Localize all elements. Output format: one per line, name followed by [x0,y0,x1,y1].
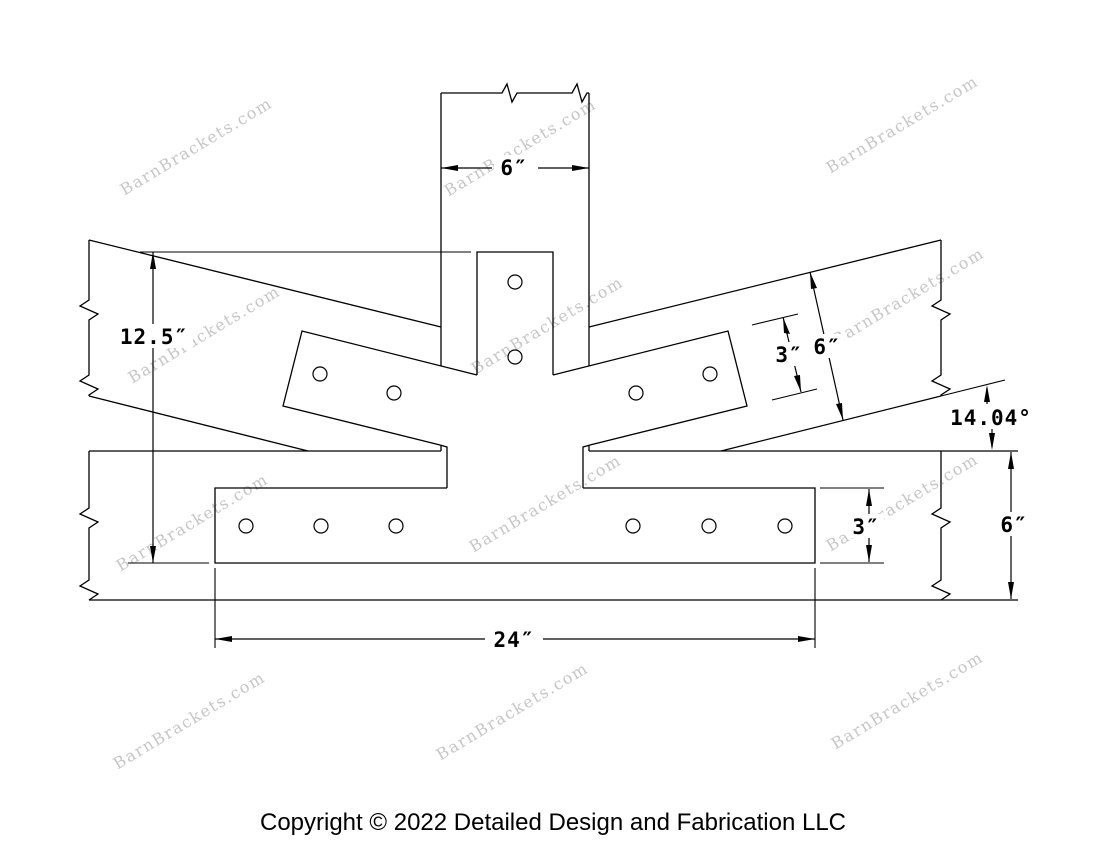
bolt-hole [508,350,522,364]
king-post-top-break-line [441,84,589,102]
bolt-hole [702,519,716,533]
bolt-hole [239,519,253,533]
dimension-label-arm-plate-width: 3″ [775,343,802,367]
arrowhead [150,252,156,269]
bolt-hole [313,367,327,381]
arrowhead [836,403,843,420]
bottom-chord-left-break-line [80,451,98,600]
bolt-hole [389,519,403,533]
arrowhead [572,165,589,171]
fan-bracket-technical-drawing: BarnBrackets.comBarnBrackets.comBarnBrac… [0,0,1100,850]
watermark-text: BarnBrackets.com [433,658,592,764]
dimension-label-post-width: 6″ [500,156,527,180]
watermark-text: BarnBrackets.com [110,667,269,773]
arrowhead [783,317,790,334]
watermark-layer: BarnBrackets.comBarnBrackets.comBarnBrac… [110,71,988,773]
arrowhead [984,385,990,402]
watermark-text: BarnBrackets.com [441,94,600,200]
left-rafter-top-edge [89,240,441,327]
watermark-text: BarnBrackets.com [117,93,276,199]
arrowhead [1008,452,1014,469]
dimension-roof-angle: 14.04° [949,385,1033,450]
arrowhead [1008,582,1014,599]
left-rafter-break-line [80,240,98,396]
dimension-label-chord-depth: 6″ [1000,513,1027,537]
bolt-hole [314,519,328,533]
dimension-label-rafter-depth: 6″ [813,335,840,359]
left-arm-plate-corner-notch [440,445,447,488]
right-rafter-slope-extension-line [941,380,1005,396]
watermark-text: BarnBrackets.com [823,449,982,555]
watermark-text: BarnBrackets.com [466,450,625,556]
dimension-base-plate-length: 24″ [215,568,815,652]
dimension-rafter-depth: 6″ [808,272,845,420]
arrowhead [989,433,995,450]
arrowhead [866,489,872,506]
dimension-label-base-plate-height: 3″ [852,515,879,539]
bolt-hole [778,519,792,533]
arrowhead [441,165,458,171]
dimension-label-overall-height: 12.5″ [120,325,188,349]
arrowhead [866,545,872,562]
dimension-label-roof-angle: 14.04° [950,406,1032,430]
bolt-hole [387,386,401,400]
watermark-text: BarnBrackets.com [829,243,988,349]
bolt-hole [626,519,640,533]
right-rafter-bottom-edge [721,396,941,451]
drawing-page: BarnBrackets.comBarnBrackets.comBarnBrac… [0,0,1100,850]
arrowhead [794,375,801,392]
arrowhead [810,272,817,289]
bolt-hole [703,367,717,381]
arrowhead [798,636,815,642]
watermark-text: BarnBrackets.com [823,71,982,177]
bolt-hole [629,386,643,400]
copyright-text: Copyright © 2022 Detailed Design and Fab… [260,809,846,836]
dimension-chord-depth: 6″ [995,452,1032,599]
arrowhead [215,636,232,642]
bolt-hole [508,275,522,289]
watermark-text: BarnBrackets.com [828,647,987,753]
dimension-arm-plate-width: 3″ [752,314,817,400]
left-arm-plate-outline [283,331,477,445]
right-arm-plate-outline [553,331,747,445]
dimension-overall-height: 12.5″ [117,252,471,563]
dimension-label-base-plate-length: 24″ [494,628,535,652]
bolt-holes [239,275,792,533]
left-rafter-bottom-edge [89,396,308,451]
